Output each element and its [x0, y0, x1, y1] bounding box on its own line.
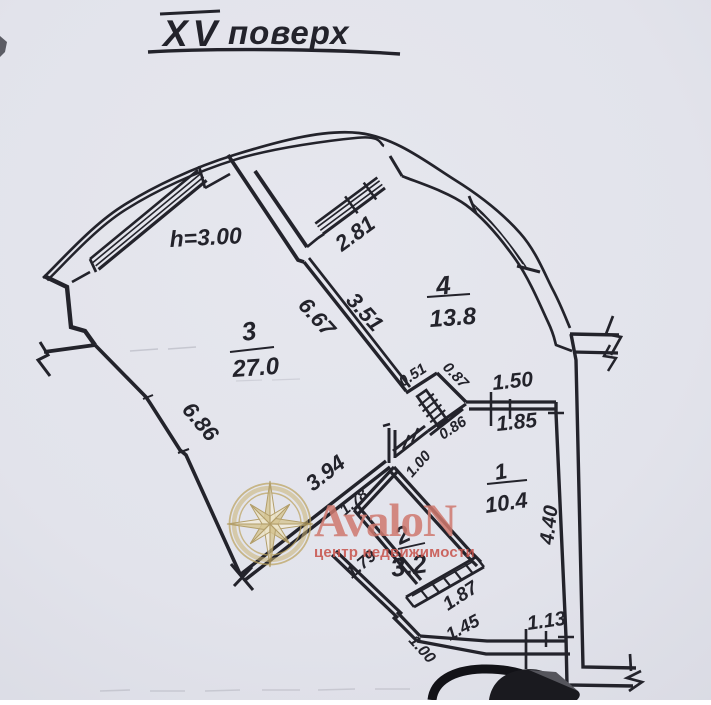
svg-text:XV: XV — [161, 13, 222, 54]
svg-text:h=3.00: h=3.00 — [169, 222, 243, 252]
svg-text:27.0: 27.0 — [231, 353, 281, 383]
svg-text:13.8: 13.8 — [429, 303, 478, 333]
svg-text:1.85: 1.85 — [495, 409, 538, 436]
svg-text:поверх: поверх — [228, 14, 350, 51]
svg-text:центр недвижимости: центр недвижимости — [314, 544, 475, 561]
svg-text:1.50: 1.50 — [491, 368, 534, 395]
svg-text:AvaloN: AvaloN — [314, 495, 457, 547]
